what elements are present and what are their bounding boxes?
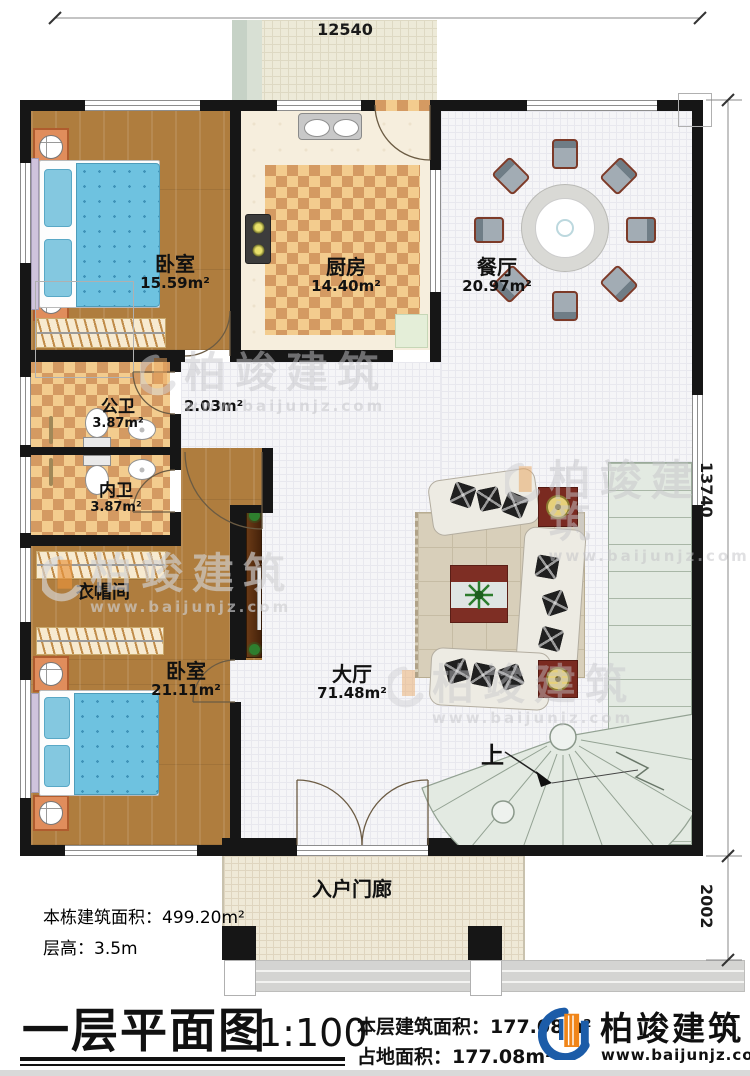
dining-table-center [556, 219, 574, 237]
entrance-threshold [297, 845, 428, 856]
title-underline [20, 1057, 345, 1061]
room-label-public-bath: 公卫 3.87m² [92, 398, 143, 431]
sink-basin [333, 119, 359, 137]
kitchen-tile-area [265, 165, 420, 335]
scale-label: 1:100 [258, 1014, 368, 1052]
table-lamp [39, 801, 63, 825]
wardrobe-rail [36, 627, 164, 655]
room-label-kitchen: 厨房 14.40m² [311, 256, 381, 295]
floor-lamp [546, 667, 570, 691]
table-lamp [39, 662, 63, 686]
window [277, 100, 361, 111]
room-label-private-bath: 内卫 3.87m² [90, 482, 141, 515]
wall [20, 535, 181, 546]
wall [170, 362, 181, 372]
window [85, 100, 200, 111]
wall [262, 448, 273, 506]
nightstand [33, 795, 69, 831]
bed-headboard [31, 693, 39, 793]
coffee-table [450, 565, 508, 623]
table-lamp [39, 135, 63, 159]
dining-chair [552, 291, 578, 321]
wall [230, 100, 241, 362]
stairs-straight-run [608, 462, 692, 845]
corridor-area-label: 2.03m² [184, 397, 243, 415]
dimension-right: 13740 [697, 462, 716, 518]
wall [230, 505, 246, 660]
wall [170, 414, 181, 470]
bed-pillow [44, 697, 70, 739]
window [65, 845, 197, 856]
terrace-edge-strip [247, 20, 262, 100]
wall [222, 838, 297, 856]
dimension-top: 12540 [310, 20, 380, 39]
brand-name: 柏竣建筑 [600, 1012, 744, 1045]
stove-burner [252, 221, 265, 234]
window [20, 163, 31, 263]
kitchen-sink [298, 113, 362, 140]
brand-site: www.baijunjz.com [601, 1046, 750, 1064]
floor-lamp [546, 495, 570, 519]
stove-burner [252, 244, 265, 257]
terrace-edge-strip [232, 20, 247, 100]
bed-quilt [74, 693, 159, 795]
bathroom-sink [128, 459, 156, 480]
towel-rod [49, 458, 53, 486]
kitchen-pass-through-window [430, 170, 441, 292]
towel-rod [49, 416, 53, 444]
platform-outline [35, 281, 134, 378]
stairs-up-label: 上 [481, 736, 504, 770]
bed-pillow [44, 169, 72, 227]
bed-pillow [44, 745, 70, 787]
pillar-base [224, 960, 256, 996]
page-title: 一层平面图 [22, 1008, 267, 1055]
window [20, 548, 31, 622]
side-table [538, 487, 578, 527]
kitchen-terrace-door-opening [375, 100, 430, 111]
side-table [538, 660, 578, 698]
sink-basin [304, 119, 330, 137]
platform-outline [678, 93, 712, 127]
footprint-area-text: 占地面积：177.08m² [357, 1042, 553, 1069]
sofa-pillow [534, 554, 559, 579]
dining-chair [626, 217, 656, 243]
brand-logo-icon [538, 1006, 594, 1060]
wall [241, 350, 393, 362]
building-total-area-text: 本栋建筑面积：499.20m² [43, 903, 245, 928]
tv [257, 568, 261, 630]
room-label-hall: 大厅 71.48m² [317, 663, 387, 702]
wall [427, 838, 525, 856]
floor-plan-page: 12540 13740 2002 卧室 15.59m² 厨房 14.40m² 餐… [0, 0, 750, 1076]
kitchen-door-mat [395, 314, 428, 348]
bottom-edge-band [0, 1070, 750, 1076]
porch-pillar [468, 926, 502, 960]
window [20, 680, 31, 798]
sofa-pillow [470, 662, 496, 688]
window [20, 377, 31, 445]
room-label-porch: 入户门廊 [312, 878, 392, 900]
room-label-bedroom-bottom: 卧室 21.11m² [151, 660, 221, 699]
wall [230, 702, 241, 856]
room-label-dining: 餐厅 20.97m² [462, 256, 532, 295]
pillar-base [470, 960, 502, 996]
porch-pillar [222, 926, 256, 960]
room-label-cloakroom: 衣帽间 [76, 583, 130, 603]
nightstand [33, 656, 69, 692]
floor-height-text: 层高：3.5m [43, 934, 138, 959]
wall [20, 447, 181, 455]
dining-chair [474, 217, 504, 243]
window [527, 100, 657, 111]
window [20, 457, 31, 533]
plant-icon [249, 644, 260, 655]
dimension-porch: 2002 [697, 884, 716, 929]
sofa-pillow [476, 486, 502, 512]
wardrobe-rail [36, 551, 166, 579]
title-underline [20, 1064, 345, 1066]
dining-chair [552, 139, 578, 169]
kitchen-stove [245, 214, 271, 264]
room-label-bedroom-top: 卧室 15.59m² [140, 253, 210, 292]
bed-double [39, 690, 159, 796]
